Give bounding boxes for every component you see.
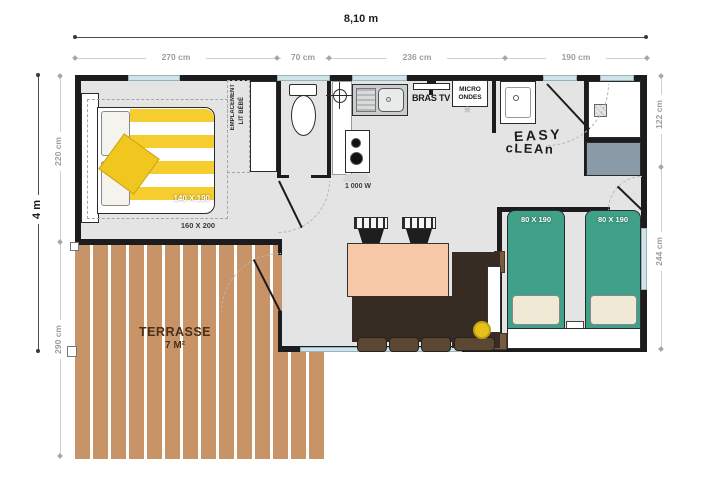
- dim-total-width: 8,10 m: [286, 13, 436, 25]
- dining-table: [347, 243, 449, 297]
- dim-tick: [658, 164, 664, 170]
- floorplan-canvas: 8,10 m 270 cm 70 cm 236 cm 190 cm 4 m 22…: [0, 0, 717, 482]
- baby-cot-label-1: EMPLACEMENT: [230, 84, 236, 130]
- dim-tick: [57, 453, 63, 459]
- dim-tick: [72, 55, 78, 61]
- dim-endpoint: [644, 35, 648, 39]
- washbasin-drain-icon: [513, 95, 519, 101]
- single-bed-right-size: 80 X 190: [586, 215, 640, 224]
- window-twinroom: [641, 228, 647, 290]
- pillow: [512, 295, 560, 325]
- sofa-cushion: [357, 337, 387, 352]
- wall-wc-bottom: [277, 175, 289, 178]
- dim-endpoint: [36, 349, 40, 353]
- dim-tick: [326, 55, 332, 61]
- gas-point-icon: [333, 89, 347, 103]
- dim-tick: [57, 73, 63, 79]
- wall-bedroom-bottom: [75, 239, 282, 245]
- chair-back-icon: [402, 217, 436, 229]
- sink-drainer-icon: [356, 88, 376, 112]
- gas-point-icon: [339, 82, 340, 109]
- hob-power-label: 1 000 W: [338, 183, 378, 190]
- window-bathroom: [543, 75, 577, 81]
- dim-tick: [658, 73, 664, 79]
- dim-total-height: 4 m: [31, 195, 43, 224]
- terrace-area: 7 M²: [110, 340, 240, 351]
- dim-left-2: 290 cm: [53, 320, 63, 359]
- washbasin-icon: [505, 87, 531, 118]
- sofa: [352, 296, 454, 342]
- baby-cot-label-2: LIT BÉBÉ: [239, 97, 245, 124]
- window-kitchen: [352, 75, 407, 81]
- sink-drain-icon: [386, 97, 391, 102]
- wall-wc-left: [277, 81, 281, 177]
- microwave-label-2: ONDES: [453, 94, 487, 102]
- sink-basin-icon: [378, 88, 404, 112]
- freezer-snowflake-icon: *: [464, 103, 471, 123]
- sofa-cushion: [421, 337, 451, 352]
- bed-zone-size-label: 160 X 200: [162, 221, 234, 230]
- tv-bracket-label: BRAS TV: [406, 93, 456, 103]
- pillow: [590, 295, 637, 325]
- wall-bathroom-left: [492, 81, 496, 133]
- dim-tick: [644, 55, 650, 61]
- side-table: [487, 266, 501, 333]
- dim-tick: [274, 55, 280, 61]
- twin-headboard: [507, 328, 641, 349]
- dim-right-2: 244 cm: [654, 232, 664, 271]
- chair-back-icon: [354, 217, 388, 229]
- bed-size-label: 140 X 190: [140, 194, 210, 203]
- dim-endpoint: [73, 35, 77, 39]
- dim-endpoint: [36, 73, 40, 77]
- bedroom-cabinet: [250, 81, 277, 172]
- tv-bracket-icon: [413, 83, 450, 90]
- window-wc: [277, 75, 330, 81]
- sofa-cushion: [389, 337, 419, 352]
- window-bedroom: [128, 75, 180, 81]
- hob-burner-icon: [350, 152, 363, 165]
- dim-top-1: 270 cm: [146, 52, 206, 62]
- microwave-label-1: MICRO: [453, 81, 487, 94]
- round-cushion: [473, 321, 491, 339]
- technical-unit: [586, 142, 641, 176]
- dim-top-4: 190 cm: [546, 52, 606, 62]
- toilet-bowl-icon: [291, 95, 316, 136]
- dim-line-total-width: [75, 37, 647, 38]
- wall-right: [641, 75, 647, 352]
- single-bed-left-size: 80 X 190: [509, 215, 563, 224]
- hob-burner-icon: [351, 138, 361, 148]
- dim-tick: [658, 346, 664, 352]
- dim-left-1: 220 cm: [53, 132, 63, 171]
- dim-top-2: 70 cm: [281, 52, 325, 62]
- hob-vent-icon: [342, 174, 372, 182]
- terrace-name: TERRASSE: [110, 325, 240, 339]
- dim-right-1: 122 cm: [654, 95, 664, 134]
- dim-tick: [502, 55, 508, 61]
- dim-tick: [57, 239, 63, 245]
- wall-wc-bottom: [311, 175, 331, 178]
- dim-top-3: 236 cm: [387, 52, 447, 62]
- terrace-post: [70, 242, 79, 251]
- tv-bracket-icon: [427, 80, 436, 84]
- sofa-cushion: [454, 337, 495, 351]
- terrace-post: [67, 346, 77, 357]
- wall-entrance-jamb: [278, 311, 282, 346]
